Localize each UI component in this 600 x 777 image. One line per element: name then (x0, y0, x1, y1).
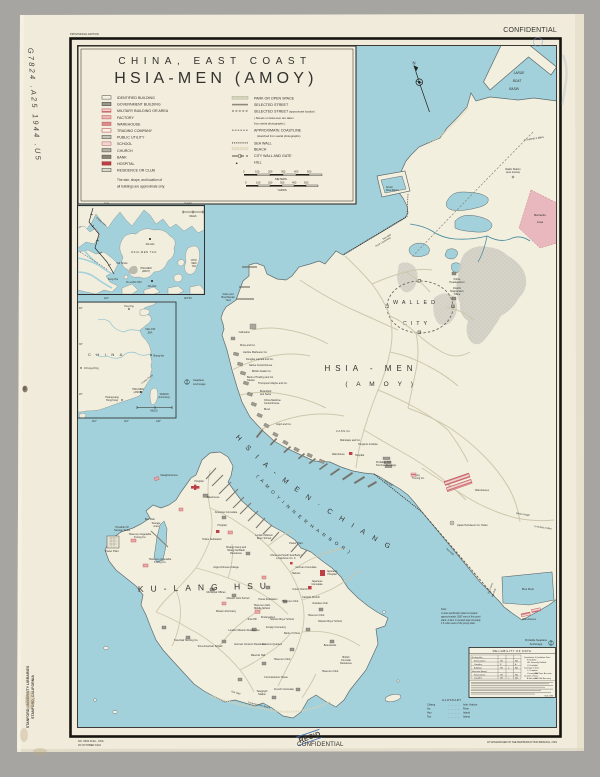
svg-text:Douglas Lapraik and Co.: Douglas Lapraik and Co. (246, 358, 274, 361)
svg-text:British Asiatic Co.: British Asiatic Co. (252, 370, 272, 373)
svg-text:Warehouse: Warehouse (207, 496, 220, 499)
svg-text:Slaughterhouse: Slaughterhouse (160, 474, 178, 477)
svg-text:C H I N A: C H I N A (88, 352, 124, 357)
svg-text:Residence: Residence (340, 662, 352, 665)
svg-text:German Consulate: German Consulate (296, 566, 318, 569)
svg-text:500: 500 (307, 170, 312, 174)
svg-text:Gopz and Co.: Gopz and Co. (276, 423, 292, 426)
svg-text:American Consulate: American Consulate (215, 511, 238, 514)
svg-text:Street pattern: Street pattern (474, 673, 485, 676)
svg-text:U: Unreliable: U: Unreliable (527, 664, 538, 667)
svg-text:Station: Station (258, 693, 266, 696)
svg-text:118°: 118° (104, 203, 109, 206)
svg-text:Kindergarten: Kindergarten (261, 616, 276, 619)
svg-text:1.6 miles east of the pump pla: 1.6 miles east of the pump plant. (441, 622, 476, 625)
svg-text:Hong Kong: Hong Kong (106, 399, 119, 402)
svg-text:Jardine Matheson Co.: Jardine Matheson Co. (243, 351, 268, 354)
svg-text:CHINA, EAST COAST: CHINA, EAST COAST (118, 56, 311, 67)
svg-text:MEN: MEN (191, 263, 196, 265)
svg-text:. . . . . . . . .: . . . . . . . . . (448, 715, 461, 718)
svg-text:GR: Generally Reliable: GR: Generally Reliable (527, 661, 546, 664)
svg-text:Grandee Club: Grandee Club (312, 602, 328, 605)
svg-text:Buildings: Buildings (474, 667, 482, 669)
svg-text:Residence: Residence (230, 552, 242, 555)
svg-text:Masonic Hall: Masonic Hall (251, 654, 266, 657)
svg-text:RA: Reas. Accurate: RA: Reas. Accurate (535, 672, 552, 675)
svg-text:Peiua Substation: Peiua Substation (259, 598, 279, 601)
svg-text:Consulate: Consulate (311, 583, 323, 586)
svg-text:RELIABILITY OF DATA: RELIABILITY OF DATA (493, 649, 532, 653)
svg-text:118°30': 118°30' (184, 203, 192, 206)
svg-text:100: 100 (256, 181, 261, 185)
svg-text:WAREHOUSE: WAREHOUSE (117, 122, 141, 126)
svg-text:Foreign Cemetery: Foreign Cemetery (266, 626, 287, 629)
svg-text:RESIDENCE OR CLUB: RESIDENCE OR CLUB (117, 169, 156, 173)
svg-text:MILITARY BUILDING OR AREA: MILITARY BUILDING OR AREA (117, 109, 169, 113)
svg-text:Note:: Note: (441, 608, 447, 611)
svg-text:HSIA-MEN TAO: HSIA-MEN TAO (131, 250, 157, 254)
svg-text:Tongsran Institute: Tongsran Institute (358, 443, 378, 446)
svg-text:Hsia-men (Amoy):: Hsia-men (Amoy): (472, 670, 488, 673)
svg-text:Yard: Yard (225, 299, 231, 302)
svg-text:TAO: TAO (192, 265, 197, 268)
svg-text:(Formosa): (Formosa) (158, 396, 169, 399)
svg-text:PARK OR OPEN SPACE: PARK OR OPEN SPACE (254, 97, 295, 101)
svg-text:C.A.S.N. Co.: C.A.S.N. Co. (336, 430, 351, 433)
svg-text:Island: Island (463, 714, 470, 718)
svg-text:Ch'ung-ch'ing: Ch'ung-ch'ing (84, 367, 99, 370)
svg-text:Hospital: Hospital (217, 524, 226, 527)
svg-text:Quantitative & Qualitative Dat: Quantitative & Qualitative Data: (524, 656, 551, 659)
svg-text:Warehouse: Warehouse (332, 453, 345, 456)
svg-text:LARGE: LARGE (514, 71, 526, 75)
svg-text:Tuning Co.: Tuning Co. (154, 561, 166, 564)
svg-text:PROVISIONAL EDITION: PROVISIONAL EDITION (70, 32, 99, 36)
svg-text:CONFIDENTIAL: CONFIDENTIAL (297, 741, 344, 748)
svg-text:Mahutapo and Co.: Mahutapo and Co. (340, 439, 361, 442)
svg-text:Hsia-men Club: Hsia-men Club (274, 658, 291, 661)
svg-text:PUBLIC UTILITY: PUBLIC UTILITY (117, 136, 145, 140)
svg-text:SEA WALL: SEA WALL (254, 141, 272, 145)
svg-text:Old Tombs: Old Tombs (117, 263, 129, 265)
svg-text:Power Plant: Power Plant (289, 542, 303, 545)
svg-text:Tao: Tao (427, 714, 432, 718)
svg-text:Catholic Church: Catholic Church (302, 596, 320, 599)
svg-text:Terminal Buildings: Terminal Buildings (376, 464, 397, 467)
svg-text:300: 300 (280, 181, 285, 185)
svg-text:Probable Seaplane: Probable Seaplane (525, 638, 548, 642)
svg-text:Hsia-men Club: Hsia-men Club (322, 670, 339, 673)
svg-text:Native Customhouse: Native Customhouse (249, 364, 273, 367)
svg-text:Bank of China: Bank of China (284, 632, 300, 635)
svg-text:HOSPITAL: HOSPITAL (117, 162, 135, 166)
svg-text:CHURCH: CHURCH (117, 149, 133, 153)
svg-text:. . . . . . . . .: . . . . . . . . . (448, 711, 461, 714)
svg-text:Boterworks: Boterworks (324, 644, 337, 647)
svg-text:Anchorage: Anchorage (530, 642, 543, 646)
svg-text:Office: Office (454, 293, 461, 296)
svg-text:N: N (413, 61, 416, 66)
svg-text:( Streets on Hsia-men are take: ( Streets on Hsia-men are taken (254, 116, 294, 120)
svg-text:(sketched from aerial photogra: (sketched from aerial photographs) (257, 134, 300, 138)
svg-text:APPROXIMATE COASTLINE: APPROXIMATE COASTLINE (254, 129, 302, 133)
svg-text:Mission Dormitory: Mission Dormitory (216, 610, 237, 613)
svg-text:Coverage of Data:: Coverage of Data: (524, 667, 540, 670)
svg-text:Shang-hai: Shang-hai (153, 355, 164, 358)
svg-text:MILES: MILES (150, 410, 158, 413)
svg-text:YARDS: YARDS (277, 188, 287, 192)
svg-text:20°: 20° (79, 393, 83, 396)
svg-text:115°: 115° (124, 420, 129, 423)
svg-text:GLOSSARY: GLOSSARY (442, 698, 462, 702)
svg-text:Boat Basin: Boat Basin (386, 188, 399, 192)
svg-text:Barracks: Barracks (534, 213, 546, 217)
svg-text:118°: 118° (104, 297, 109, 300)
svg-text:AN-HAI: AN-HAI (146, 242, 155, 246)
svg-text:GOVERNMENT BUILDING: GOVERNMENT BUILDING (117, 103, 161, 107)
svg-text:HSIA - MEN: HSIA - MEN (324, 364, 417, 373)
svg-text:Headquarters: Headquarters (449, 281, 465, 284)
svg-text:Bund: Bund (264, 408, 270, 411)
svg-text:118°30': 118°30' (184, 297, 192, 300)
svg-text:Mission Girls School: Mission Girls School (227, 597, 250, 600)
svg-text:Bus Ruin: Bus Ruin (522, 587, 535, 591)
svg-text:(less known): (less known) (506, 171, 520, 174)
svg-text:AN-HAI: AN-HAI (148, 284, 157, 288)
svg-text:CITY WALL AND GATE: CITY WALL AND GATE (254, 154, 292, 158)
svg-text:Seaplane: Seaplane (193, 378, 205, 382)
svg-text:Street pattern: Street pattern (474, 659, 485, 662)
svg-text:Pei-p'ing: Pei-p'ing (124, 305, 134, 308)
svg-text:Police Substation: Police Substation (202, 538, 222, 541)
svg-text:. . . . . . . . .: . . . . . . . . . (448, 703, 461, 706)
svg-text:Middle School: Middle School (254, 607, 270, 610)
svg-text:Tuning Co.: Tuning Co. (134, 536, 146, 539)
svg-text:FACTORY: FACTORY (117, 116, 134, 120)
svg-text:Power Plant: Power Plant (105, 550, 119, 553)
svg-text:SCHOOL: SCHOOL (117, 142, 132, 146)
svg-text:. . . . . . . . .: . . . . . . . . . (448, 707, 461, 710)
svg-text:HSIA-MEN (AMOY): HSIA-MEN (AMOY) (114, 70, 317, 87)
svg-text:River: River (463, 706, 469, 710)
svg-text:CHIN-: CHIN- (191, 260, 198, 262)
svg-text:from aerial photographs.): from aerial photographs.) (254, 122, 285, 126)
svg-text:40°: 40° (79, 307, 83, 310)
svg-text:BASIN: BASIN (509, 87, 519, 91)
svg-text:300: 300 (281, 170, 286, 174)
svg-text:200: 200 (268, 170, 273, 174)
svg-text:LITHOGRAPHED IN THE REPRODUCTI: LITHOGRAPHED IN THE REPRODUCTION BRANCH,… (487, 740, 557, 744)
svg-text:Area: Area (153, 525, 159, 528)
svg-text:Area: Area (537, 220, 544, 224)
svg-text:The size, shape, and location: The size, shape, and location of (117, 178, 162, 182)
svg-text:HSIA-MEN: HSIA-MEN (140, 267, 152, 270)
svg-text:Customs Quarters: Customs Quarters (262, 643, 283, 646)
svg-text:120°: 120° (156, 420, 161, 423)
svg-text:KU-LANG HSU: KU-LANG HSU (126, 281, 142, 284)
svg-text:MILES: MILES (189, 215, 197, 218)
svg-text:Storage Tanks: Storage Tanks (114, 529, 131, 532)
svg-text:200: 200 (268, 181, 273, 185)
svg-text:Hsia-men Club: Hsia-men Club (308, 614, 325, 617)
svg-text:Tinning Co.: Tinning Co. (412, 477, 425, 480)
svg-text:Lonsphone Co. C: Lonsphone Co. C (276, 557, 296, 560)
svg-text:Bus Ruin: Bus Ruin (145, 518, 156, 521)
svg-text:Island: Island (463, 710, 470, 714)
svg-text:all buildings are approximate: all buildings are approximate only. (117, 185, 165, 189)
svg-text:French Consulate: French Consulate (274, 688, 294, 691)
svg-text:and Swire: and Swire (260, 393, 272, 396)
svg-text:SELECTED STREET (approximate: SELECTED STREET (approximate location) (254, 109, 315, 113)
svg-text:Jima Hill: Jima Hill (247, 618, 257, 621)
svg-text:METERS: METERS (275, 177, 287, 181)
svg-text:BEACH: BEACH (254, 148, 267, 152)
svg-text:SELECTED STREET: SELECTED STREET (254, 103, 289, 107)
svg-text:Haiman: Haiman (292, 572, 301, 575)
svg-text:(AMOY): (AMOY) (142, 270, 151, 273)
svg-text:Japan Petroleum Co. Tanks: Japan Petroleum Co. Tanks (457, 524, 488, 527)
svg-text:Boys' School: Boys' School (257, 537, 272, 540)
svg-text:Taiwan: Taiwan (247, 379, 255, 382)
svg-text:Hsu: Hsu (427, 710, 432, 714)
svg-text:Union Church: Union Church (292, 588, 308, 591)
svg-text:26 OCTOBER 1944: 26 OCTOBER 1944 (78, 743, 101, 747)
svg-text:Sung-Hsu: Sung-Hsu (108, 279, 119, 281)
svg-text:Coastline: Coastline (474, 677, 482, 680)
svg-text:Chiang: Chiang (427, 702, 436, 706)
svg-text:London Mission Residences: London Mission Residences (228, 629, 260, 632)
svg-text:Inlet, Harbor: Inlet, Harbor (463, 702, 477, 706)
svg-text:400: 400 (292, 181, 297, 185)
svg-text:NO. 5293 R.&A., OSS: NO. 5293 R.&A., OSS (78, 739, 104, 743)
svg-text:30°: 30° (79, 343, 83, 346)
svg-text:Anchorage: Anchorage (193, 382, 206, 386)
svg-text:500: 500 (304, 181, 309, 185)
svg-text:HILL: HILL (254, 161, 262, 165)
svg-text:BOAT: BOAT (513, 79, 522, 83)
svg-text:IDENTIFIED BUILDING: IDENTIFIED BUILDING (117, 96, 155, 100)
svg-text:Mosy and Co.: Mosy and Co. (240, 344, 256, 347)
svg-text:CONFIDENTIAL: CONFIDENTIAL (503, 27, 557, 34)
svg-text:Trading and Co.: Trading and Co. (256, 376, 274, 379)
svg-text:Location of Data:: Location of Data: (524, 675, 539, 678)
svg-text:400: 400 (294, 170, 299, 174)
svg-text:Thompson Maybe and Co.: Thompson Maybe and Co. (258, 382, 288, 385)
svg-text:SEA: SEA (148, 331, 153, 334)
svg-text:Ku-lang Hsu:: Ku-lang Hsu: (472, 657, 483, 659)
svg-text:100: 100 (255, 170, 260, 174)
svg-text:▲: ▲ (235, 161, 238, 165)
svg-text:TRADING COMPANY: TRADING COMPANY (117, 129, 153, 133)
svg-text:Customhouse: Customhouse (264, 402, 280, 405)
svg-text:110°: 110° (92, 420, 97, 423)
svg-text:Hospital: Hospital (355, 454, 364, 457)
svg-text:BANK: BANK (117, 155, 127, 159)
svg-text:Coastline: Coastline (474, 663, 482, 666)
svg-text:C: Complete: C: Complete (527, 669, 538, 672)
svg-text:Warehouses: Warehouses (475, 489, 490, 492)
svg-text:Ho: Ho (427, 706, 431, 710)
svg-text:Commissioner House: Commissioner House (264, 676, 289, 679)
svg-text:R.A. 5293: R.A. 5293 (545, 694, 553, 697)
svg-text:Hospital: Hospital (327, 573, 336, 576)
svg-text:Cathedral: Cathedral (239, 331, 250, 334)
svg-text:Anglo-Chinese College: Anglo-Chinese College (213, 566, 239, 569)
svg-text:Sino-American School: Sino-American School (198, 645, 223, 648)
svg-text:Mission Boys' School: Mission Boys' School (318, 620, 342, 623)
svg-text:Warehouses: Warehouses (522, 618, 537, 621)
svg-text:( A M O Y ): ( A M O Y ) (345, 381, 416, 388)
svg-text:WALLED: WALLED (393, 300, 439, 306)
svg-text:DA: Dbtf. Accuracy: DA: Dbtf. Accuracy (535, 677, 551, 680)
svg-text:Twa-Kiak Tanning Co.: Twa-Kiak Tanning Co. (174, 639, 199, 642)
svg-text:(AMOY): (AMOY) (134, 391, 143, 394)
svg-text:Hospital: Hospital (194, 480, 203, 483)
svg-text:Hsia-men Club: Hsia-men Club (282, 600, 299, 603)
